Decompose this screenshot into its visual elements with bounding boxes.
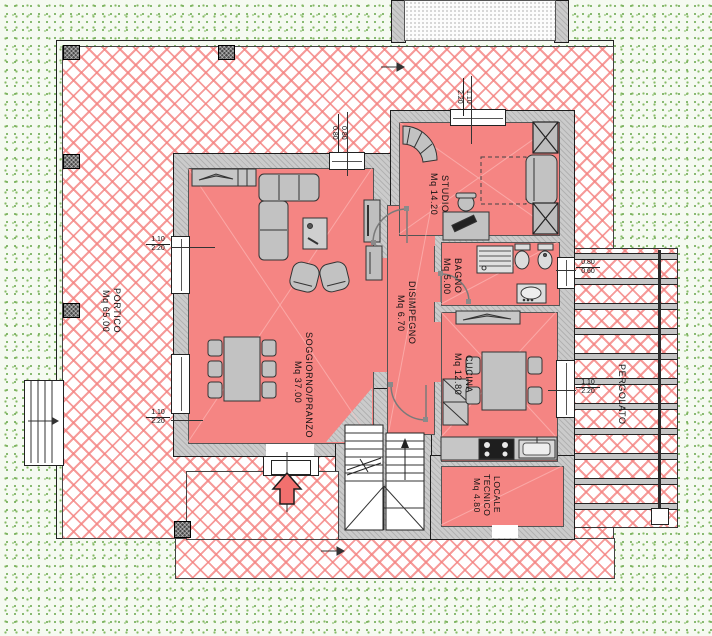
bathroom-sink [517,284,546,303]
floor-plan: SOGGIORNO/PRANZO Mq 37.00 STUDIO Mq 14.2… [0,0,712,636]
external-stair-treads [28,381,52,463]
coffee-table [303,218,327,249]
dim-leader [471,76,472,144]
dim-window-north-studio: 1.10 2.20 [455,78,472,116]
dim-leader [556,270,576,271]
room-label-bagno: BAGNO Mq 5.00 [441,248,463,304]
kitchen-sideboard [456,311,520,324]
dim-window-north-soggiorno: 0.80 0.80 [330,114,347,152]
external-stair-arrow [52,417,59,425]
room-label-pergolato: PERGOLATO [616,346,627,442]
dining-table [208,337,276,401]
internal-stairs [345,425,424,530]
dim-window-west-upper: 1.10 2.20 [146,236,170,253]
dim-window-east-cucina: 1.10 2.20 [576,379,600,396]
room-label-soggiorno: SOGGIORNO/PRANZO Mq 37.00 [292,332,314,432]
bidet [538,244,553,269]
dim-leader [548,390,576,391]
dim-leader [347,112,348,176]
dim-leader [171,247,215,248]
sideboard [192,169,256,186]
room-label-locale-tecnico: LOCALE TECNICO Mq 4.80 [472,466,502,524]
kitchen-table [466,352,542,410]
dim-window-west-lower: 1.10 2.20 [146,409,170,426]
entrance-arrow [273,473,301,504]
room-label-portico: PORTICO Mq 65.00 [100,266,122,356]
room-label-studio: STUDIO Mq 14.20 [428,156,450,232]
room-label-cucina: CUCINA Mq 12.80 [452,334,474,414]
dim-window-east-bagno: 0.80 0.60 [576,259,600,276]
room-label-disimpegno: DISIMPEGNO Mq 6.70 [395,262,417,364]
dim-leader [171,420,203,421]
kitchen-counter [441,437,557,460]
toilet [515,244,530,269]
armchair [288,260,351,294]
shower [477,246,513,273]
sofa-bed [481,155,557,204]
